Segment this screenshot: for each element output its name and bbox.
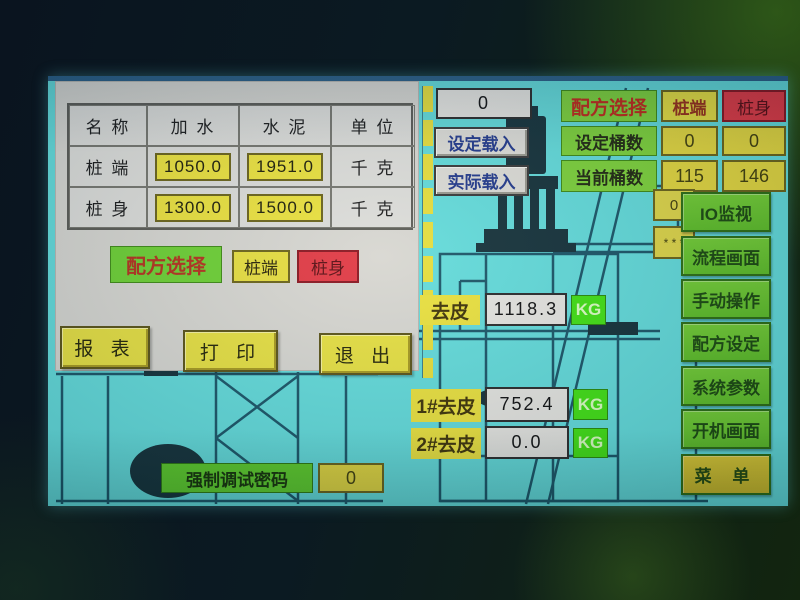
row-pile-end-unit: 千 克 xyxy=(331,146,415,187)
tare2-unit: KG xyxy=(573,428,608,458)
pile-body-select-button[interactable]: 桩身 xyxy=(297,250,359,283)
debug-password-field[interactable]: 0 xyxy=(318,463,384,493)
table-row: 1050.0 xyxy=(147,146,239,187)
tare1-value-field[interactable]: 752.4 xyxy=(485,387,569,422)
recipe-select-label: 配方选择 xyxy=(110,246,222,283)
table-row: 1300.0 xyxy=(147,187,239,228)
row-pile-body-name: 桩 身 xyxy=(69,187,147,228)
pile-body-water-field[interactable]: 1300.0 xyxy=(155,194,231,222)
row-pile-body-unit: 千 克 xyxy=(331,187,415,228)
exit-button[interactable]: 退 出 xyxy=(319,333,412,375)
col-header-water: 加 水 xyxy=(147,105,239,146)
row-pile-end-name: 桩 端 xyxy=(69,146,147,187)
pile-body-right-button[interactable]: 桩身 xyxy=(722,90,786,122)
pile-end-select-button[interactable]: 桩端 xyxy=(232,250,290,283)
pile-end-cement-field[interactable]: 1951.0 xyxy=(247,153,323,181)
pile-body-cement-field[interactable]: 1500.0 xyxy=(247,194,323,222)
tare-label: 去皮 xyxy=(420,295,480,325)
menu-item-process-screen[interactable]: 流程画面 xyxy=(681,236,771,276)
debug-password-label: 强制调试密码 xyxy=(161,463,313,493)
pile-end-water-field[interactable]: 1050.0 xyxy=(155,153,231,181)
pile-end-right-button[interactable]: 桩端 xyxy=(661,90,718,122)
hmi-screen: 名 称 加 水 水 泥 单 位 桩 端 1050.0 1951.0 千 克 桩 … xyxy=(48,76,788,506)
tare1-label: 1#去皮 xyxy=(411,389,481,422)
tare-unit: KG xyxy=(571,295,606,325)
current-barrel-count-label: 当前桶数 xyxy=(561,160,657,192)
report-button[interactable]: 报 表 xyxy=(60,326,150,369)
table-row: 1951.0 xyxy=(239,146,331,187)
actual-load-button[interactable]: 实际载入 xyxy=(434,165,529,196)
set-barrel-count-label: 设定桶数 xyxy=(561,126,657,156)
current-barrel-count-1: 115 xyxy=(661,160,718,192)
col-header-name: 名 称 xyxy=(69,105,147,146)
menu-item-system-params[interactable]: 系统参数 xyxy=(681,366,771,406)
menu-item-startup-screen[interactable]: 开机画面 xyxy=(681,409,771,449)
set-barrel-count-2[interactable]: 0 xyxy=(722,126,786,156)
current-barrel-count-2: 146 xyxy=(722,160,786,192)
menu-item-manual-op[interactable]: 手动操作 xyxy=(681,279,771,319)
recipe-table: 名 称 加 水 水 泥 单 位 桩 端 1050.0 1951.0 千 克 桩 … xyxy=(67,103,413,230)
recipe-select-right-label: 配方选择 xyxy=(561,90,657,122)
menu-button[interactable]: 菜 单 xyxy=(681,454,771,495)
tare1-unit: KG xyxy=(573,389,608,420)
elevator-column xyxy=(422,86,433,378)
load-value-field[interactable]: 0 xyxy=(436,88,532,119)
col-header-cement: 水 泥 xyxy=(239,105,331,146)
recipe-panel: 名 称 加 水 水 泥 单 位 桩 端 1050.0 1951.0 千 克 桩 … xyxy=(55,81,419,371)
menu-item-recipe-setting[interactable]: 配方设定 xyxy=(681,322,771,362)
print-button[interactable]: 打 印 xyxy=(183,330,278,372)
tare2-label: 2#去皮 xyxy=(411,428,481,459)
tare-value-field[interactable]: 1118.3 xyxy=(485,293,567,326)
set-load-button[interactable]: 设定载入 xyxy=(434,127,529,158)
menu-item-io-monitor[interactable]: IO监视 xyxy=(681,192,771,232)
table-row: 1500.0 xyxy=(239,187,331,228)
col-header-unit: 单 位 xyxy=(331,105,415,146)
set-barrel-count-1[interactable]: 0 xyxy=(661,126,718,156)
tare2-value-field[interactable]: 0.0 xyxy=(485,426,569,459)
